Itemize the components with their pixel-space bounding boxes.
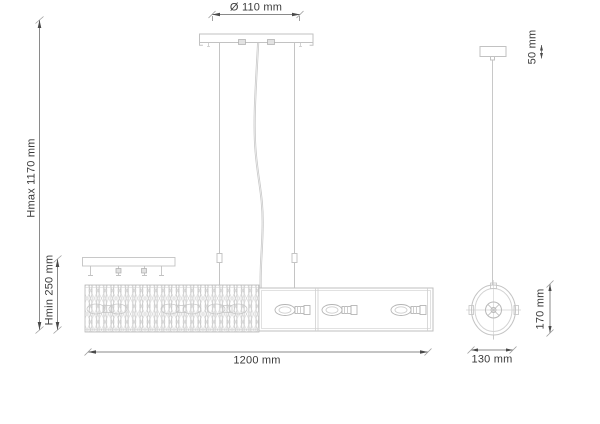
technical-drawing-canvas: Ø 110 mm Hmax 1170 mm Hmin 250 mm 1200 m…: [0, 0, 600, 424]
dimension-label-min-height: Hmin 250 mm: [45, 255, 56, 326]
front-canopy: [200, 34, 314, 47]
side-profile: [466, 280, 521, 340]
bulb-assemblies: [275, 305, 426, 316]
dimension-label-fixture-length: 1200 mm: [233, 356, 280, 367]
power-cable: [254, 43, 263, 289]
crystal-shade-section: [85, 285, 259, 332]
dimension-label-side-canopy-height: 50 mm: [528, 30, 539, 65]
dimension-label-max-height: Hmax 1170 mm: [27, 138, 38, 217]
dimension-label-side-width: 130 mm: [472, 355, 513, 366]
side-canopy: [480, 47, 506, 286]
dimension-label-canopy-diameter: Ø 110 mm: [230, 2, 282, 13]
dimension-label-side-height: 170 mm: [536, 289, 547, 330]
flush-mount-plate: [83, 258, 176, 276]
suspension-rod-left: [217, 43, 222, 286]
suspension-rod-right: [292, 43, 297, 289]
